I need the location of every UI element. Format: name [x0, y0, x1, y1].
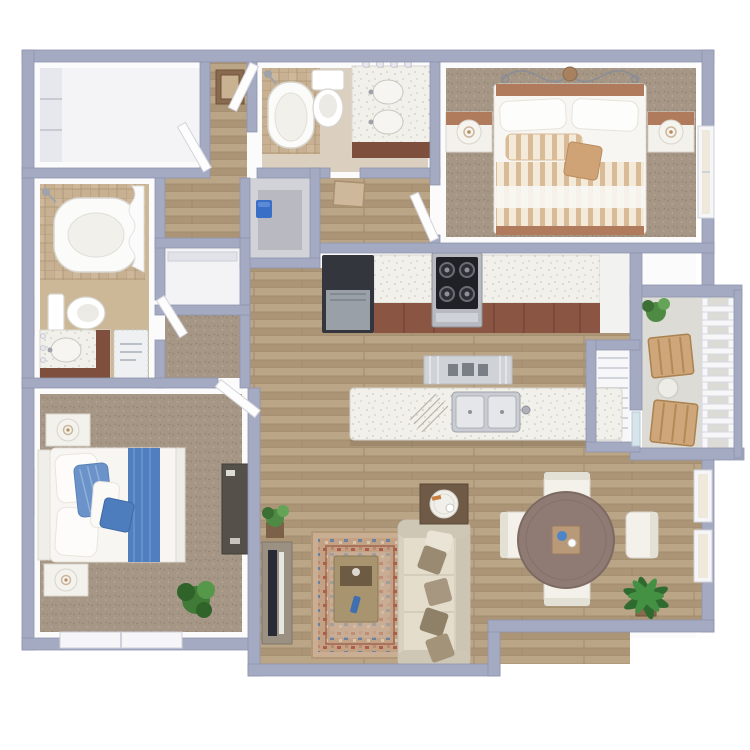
tv [268, 550, 277, 636]
scroll-star-medallion [563, 67, 577, 81]
bath1-tub-basin [275, 93, 307, 141]
closet-shelving-unit [40, 68, 62, 162]
dining-window-upper [694, 470, 712, 522]
island-double-sink [452, 392, 520, 432]
sofa-back [456, 524, 470, 664]
refrigerator-front [326, 290, 370, 330]
bed1-footboard [496, 226, 644, 235]
patio-side-table [658, 378, 678, 398]
bath1-double-vanity [352, 61, 430, 159]
doorway-mat [333, 181, 365, 207]
floor-plan-image [0, 0, 750, 750]
nightstand-right [648, 112, 694, 152]
wall-dining-bottom [488, 620, 714, 632]
island-shadow [350, 440, 622, 446]
wall-living-bottom [248, 664, 500, 676]
walk-in-closet-floor [40, 68, 204, 162]
patio-chair-bottom [650, 400, 698, 446]
bed1-fold-band [496, 186, 644, 208]
island-faucet [522, 406, 530, 414]
wall-bath1-bottom-right [360, 168, 440, 178]
wall-balcony-bottom [630, 448, 744, 460]
bath2-vanity-cabinet [40, 368, 110, 378]
bath2-mat [114, 330, 148, 380]
bedroom2-window [60, 632, 182, 648]
wall-utility-right [310, 168, 320, 268]
bed1-pillow-left [499, 98, 566, 131]
wall-outer-left [22, 50, 34, 650]
wall-balcony-divider [630, 253, 642, 410]
bath2-tub-basin [68, 213, 124, 257]
bath1-vanity-cabinet [352, 142, 430, 158]
bed2-blue-accent-pillow [99, 497, 135, 533]
bed1-pillow-right [571, 98, 638, 131]
water-heater-top [258, 202, 270, 207]
dining-window-lower [694, 530, 712, 582]
bath2-vanity [40, 330, 110, 378]
balcony-sliding-door [632, 412, 640, 446]
wall-balcony-outer-edge [734, 290, 742, 458]
range [432, 253, 482, 327]
sofa [398, 520, 470, 668]
wall-balcony-top [630, 285, 742, 297]
bedroom1-window [698, 126, 714, 218]
bath2-vanity-lights [41, 334, 46, 363]
wall-bedroom2-right [248, 388, 260, 676]
wall-bedroom1-left-upper [430, 62, 440, 185]
range-handle [436, 313, 478, 322]
bed1-accent-pillow [563, 141, 602, 180]
cabinet-end-panel [600, 255, 630, 333]
kitchen-cabinets [374, 303, 600, 333]
patio-chair-top [648, 334, 694, 378]
bed1-headboard [496, 84, 644, 96]
kitchen-countertop [374, 255, 600, 303]
bath1-toilet [312, 70, 344, 127]
end-table [420, 484, 468, 524]
wall-closetB-top [155, 238, 250, 248]
kitchen-island [350, 388, 622, 446]
wall-utility-bottom [240, 258, 320, 268]
linen-shelf [168, 252, 237, 261]
hall-mid-floor [165, 178, 240, 238]
bedroom2-nightstand-top [46, 414, 90, 446]
bed-1 [494, 84, 646, 235]
wall-bedroom2-top [22, 378, 218, 388]
nightstand-left [446, 112, 492, 152]
wall-outer-top [22, 50, 714, 62]
bedroom2-dresser [222, 464, 248, 554]
floor-plan-svg [0, 0, 750, 750]
kitchen-runner-mat [424, 356, 512, 384]
bed-2 [38, 448, 185, 562]
bath2-toilet [48, 294, 105, 332]
wall-closet-bath2 [22, 168, 210, 178]
bedroom2-nightstand-bottom [44, 564, 88, 596]
wall-mech-closet-left [586, 340, 596, 448]
bed2-footboard [176, 448, 185, 562]
wall-kitchen-back [320, 243, 714, 253]
tv-console [262, 542, 292, 644]
bed2-headboard [38, 450, 50, 560]
centerpiece [552, 526, 580, 554]
utility-closet-shadow [258, 190, 302, 250]
coffee-table [334, 556, 378, 622]
